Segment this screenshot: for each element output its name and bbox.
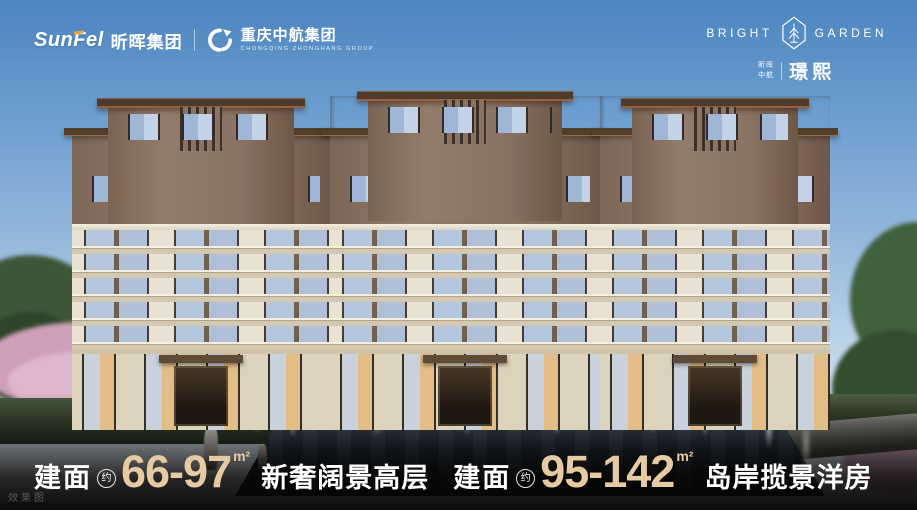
brand-word-left: BRIGHT [706, 26, 772, 40]
approx-circle: 约 [97, 469, 116, 488]
zhonghang-names: 重庆中航集团 CHONGQING ZHONGHANG GROUP [241, 28, 375, 53]
zhonghang-logo-group: 重庆中航集团 CHONGQING ZHONGHANG GROUP [206, 26, 375, 54]
entrance-door [174, 366, 228, 426]
area-range: 95-142 [540, 446, 674, 497]
area-unit: m² [676, 448, 693, 464]
area-range: 66-97 [121, 446, 231, 497]
approx-circle: 约 [516, 469, 535, 488]
area-unit: m² [233, 448, 250, 464]
header-logos-left: SunFel 昕晖集团 重庆中航集团 CHONGQING ZHONGHANG G… [34, 26, 374, 54]
balcony-floor-row [72, 230, 330, 254]
brand-logo-right: BRIGHT GARDEN 昕晖 中航 璟熙 [706, 16, 887, 84]
render-watermark: 效果图 [8, 489, 47, 504]
brand-project-name: 璟熙 [789, 57, 835, 84]
balcony-floor-row [600, 302, 830, 326]
penthouse [632, 98, 798, 228]
balcony-floor-row [600, 230, 830, 254]
ground-floor [72, 350, 330, 430]
brand-sub-row: 昕晖 中航 璟熙 [758, 57, 835, 84]
penthouse [108, 98, 294, 228]
entrance-door [688, 366, 742, 426]
hexagon-tree-icon [782, 16, 806, 50]
balcony-floor-row [330, 230, 600, 254]
tower-left [72, 96, 330, 426]
tower-center [330, 96, 600, 426]
area-label: 建面 [453, 463, 511, 493]
window-row [378, 107, 552, 133]
brand-sub-bottom: 中航 [758, 71, 774, 80]
brand-name-row: BRIGHT GARDEN [706, 16, 887, 50]
apartment-building [72, 96, 830, 426]
balcony-floor-row [72, 278, 330, 302]
balcony-floor-row [72, 302, 330, 326]
logo-divider [194, 29, 195, 51]
logo-divider [781, 62, 782, 80]
sunfel-cn-name: 昕晖集团 [111, 28, 183, 53]
tagline-bar: 建面约66-97m²新奢阔景高层建面约95-142m²岛岸揽景洋房 [34, 449, 872, 494]
window-row [642, 114, 788, 140]
product-title: 岛岸揽景洋房 [704, 463, 872, 493]
zhonghang-en-name: CHONGQING ZHONGHANG GROUP [241, 46, 375, 52]
penthouse [368, 91, 562, 221]
balcony-facade [330, 230, 600, 350]
entrance-door [438, 366, 492, 426]
product-title: 新奢阔景高层 [261, 463, 429, 493]
balcony-floor-row [330, 254, 600, 278]
ground-floor [600, 350, 830, 430]
balcony-floor-row [72, 254, 330, 278]
balcony-floor-row [600, 254, 830, 278]
ground-floor [330, 350, 600, 430]
balcony-floor-row [330, 302, 600, 326]
tower-right [600, 96, 830, 426]
zhonghang-cn-name: 重庆中航集团 [241, 28, 375, 45]
sunfel-wordmark: SunFel [34, 29, 104, 52]
poster: SunFel 昕晖集团 重庆中航集团 CHONGQING ZHONGHANG G… [0, 0, 917, 510]
balcony-floor-row [72, 326, 330, 350]
balcony-floor-row [600, 278, 830, 302]
balcony-facade [600, 230, 830, 350]
brand-word-right: GARDEN [815, 26, 887, 40]
brand-sub-group: 昕晖 中航 [758, 61, 774, 80]
balcony-floor-row [330, 326, 600, 350]
sunfel-logo-group: SunFel 昕晖集团 [34, 28, 183, 53]
swirl-phoenix-icon [206, 26, 234, 54]
window-row [118, 114, 284, 140]
brand-sub-top: 昕晖 [758, 61, 774, 70]
balcony-facade [72, 230, 330, 350]
balcony-floor-row [600, 326, 830, 350]
balcony-floor-row [330, 278, 600, 302]
